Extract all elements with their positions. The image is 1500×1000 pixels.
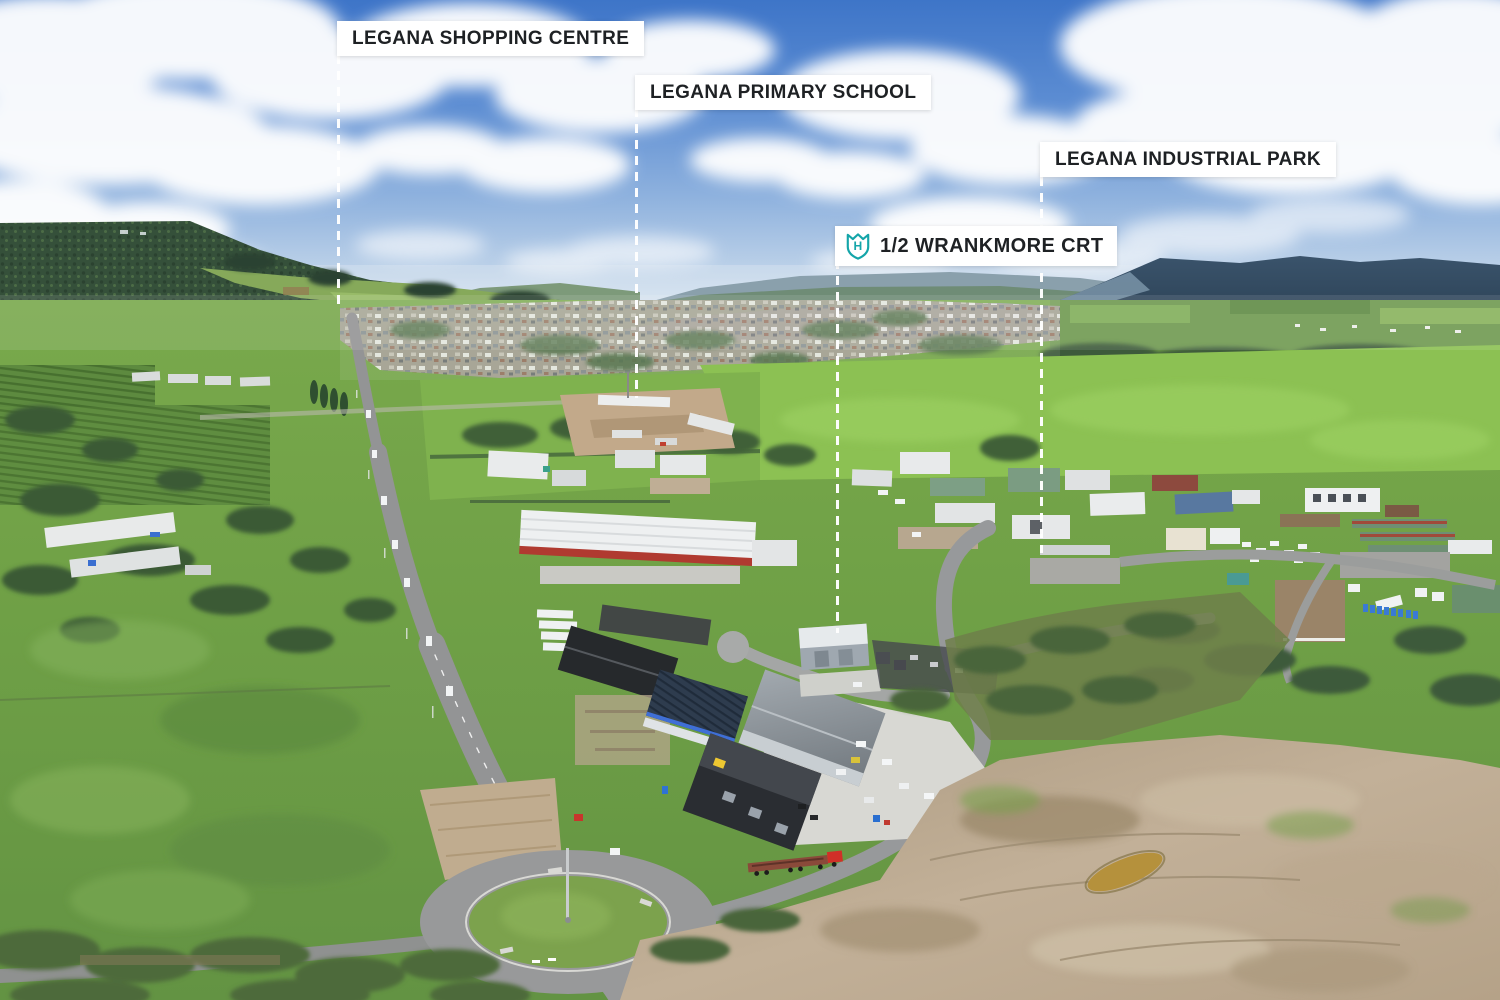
leader-line-primary-school bbox=[635, 108, 638, 398]
callout-property-label: 1/2 WRANKMORE CRT bbox=[880, 236, 1103, 256]
callout-primary-school: LEGANA PRIMARY SCHOOL bbox=[635, 75, 931, 110]
callout-industrial-park-label: LEGANA INDUSTRIAL PARK bbox=[1055, 149, 1321, 170]
callout-primary-school-label: LEGANA PRIMARY SCHOOL bbox=[650, 82, 916, 103]
shield-h-icon: H bbox=[845, 232, 871, 260]
leader-line-shopping-centre bbox=[337, 55, 340, 310]
callout-shopping-centre-label: LEGANA SHOPPING CENTRE bbox=[352, 28, 629, 49]
roundabout-light-pole bbox=[566, 848, 569, 920]
callout-shopping-centre: LEGANA SHOPPING CENTRE bbox=[337, 21, 644, 56]
subject-property-shed bbox=[799, 624, 870, 671]
callout-industrial-park: LEGANA INDUSTRIAL PARK bbox=[1040, 142, 1336, 177]
svg-text:H: H bbox=[853, 239, 862, 253]
callout-property: H 1/2 WRANKMORE CRT bbox=[835, 226, 1117, 266]
haze bbox=[0, 295, 1500, 350]
leader-line-property bbox=[836, 260, 839, 633]
aerial-photo-stage: LEGANA SHOPPING CENTRE LEGANA PRIMARY SC… bbox=[0, 0, 1500, 1000]
